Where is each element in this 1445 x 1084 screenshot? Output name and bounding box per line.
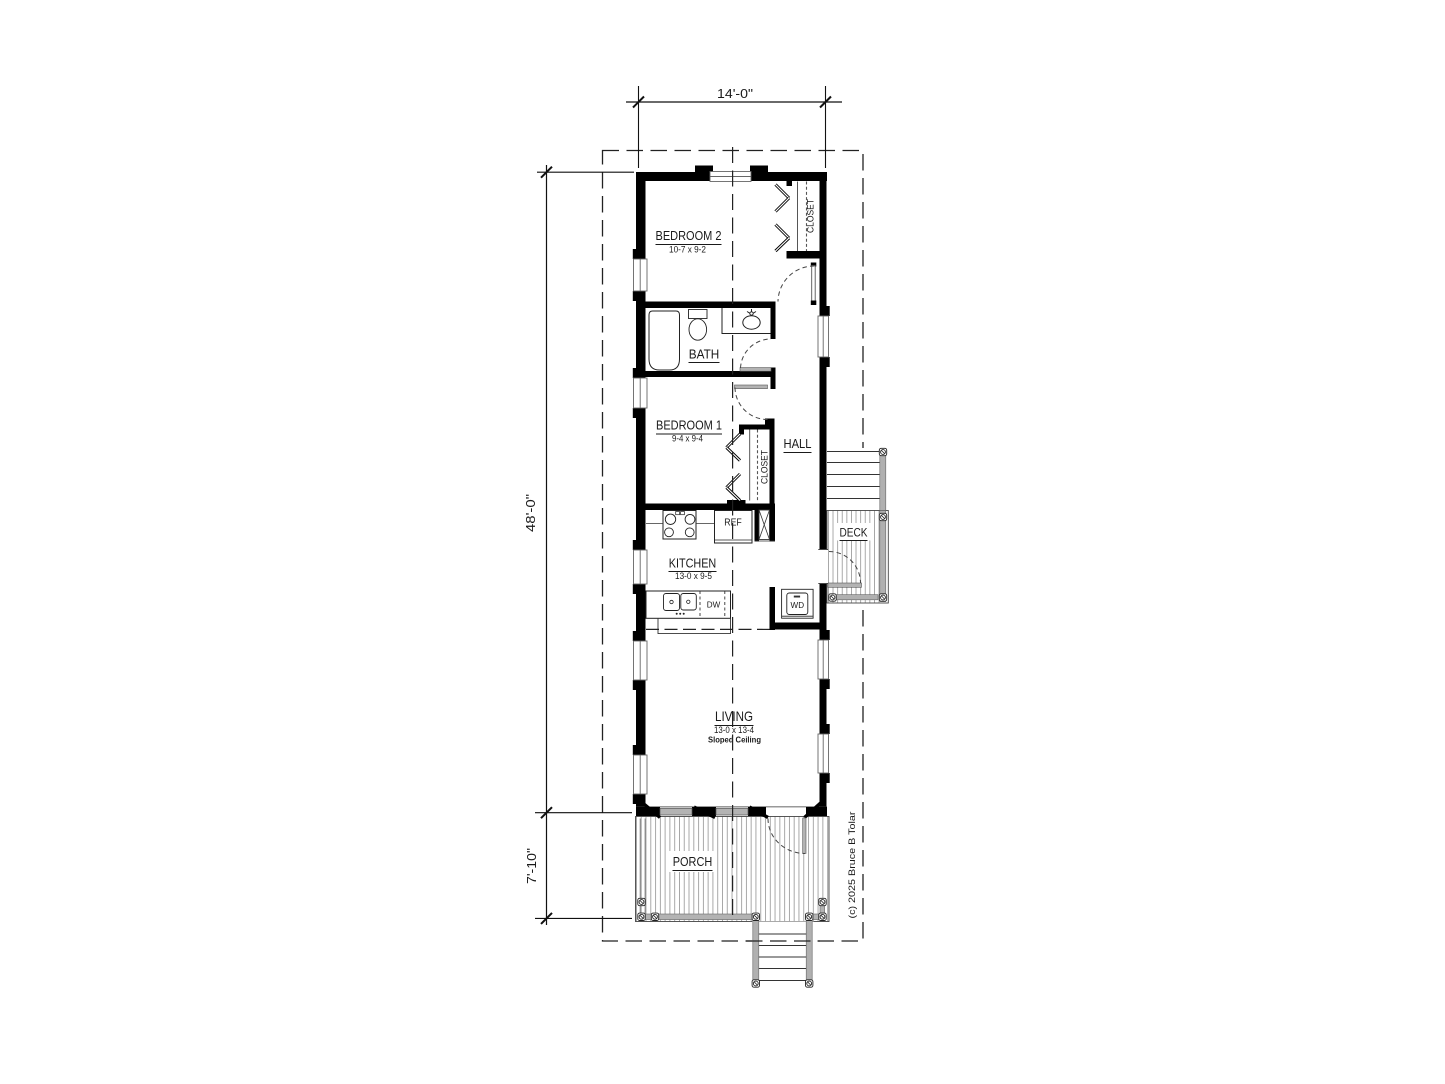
svg-text:BEDROOM 2: BEDROOM 2 [656,229,722,243]
svg-text:14'-0": 14'-0" [717,86,753,101]
svg-text:13-0 x 9-5: 13-0 x 9-5 [675,571,712,581]
svg-text:WD: WD [791,600,805,610]
svg-text:KITCHEN: KITCHEN [669,557,717,571]
svg-text:(c) 2025 Bruce B Tolar: (c) 2025 Bruce B Tolar [847,812,858,919]
svg-text:CLOSET: CLOSET [760,450,771,484]
svg-text:DECK: DECK [840,528,868,540]
svg-text:HALL: HALL [784,437,812,451]
svg-text:DW: DW [707,600,721,610]
svg-text:BATH: BATH [689,348,720,362]
svg-text:CLOSET: CLOSET [806,199,817,233]
svg-text:BEDROOM 1: BEDROOM 1 [656,419,722,433]
svg-text:9-4 x 9-4: 9-4 x 9-4 [672,434,703,444]
svg-text:7'-10": 7'-10" [524,848,539,884]
svg-text:LIVING: LIVING [715,708,753,724]
svg-text:PORCH: PORCH [673,855,713,869]
svg-text:10-7 x 9-2: 10-7 x 9-2 [669,245,706,255]
svg-text:Sloped Ceiling: Sloped Ceiling [708,735,761,745]
svg-text:48'-0": 48'-0" [523,494,538,532]
